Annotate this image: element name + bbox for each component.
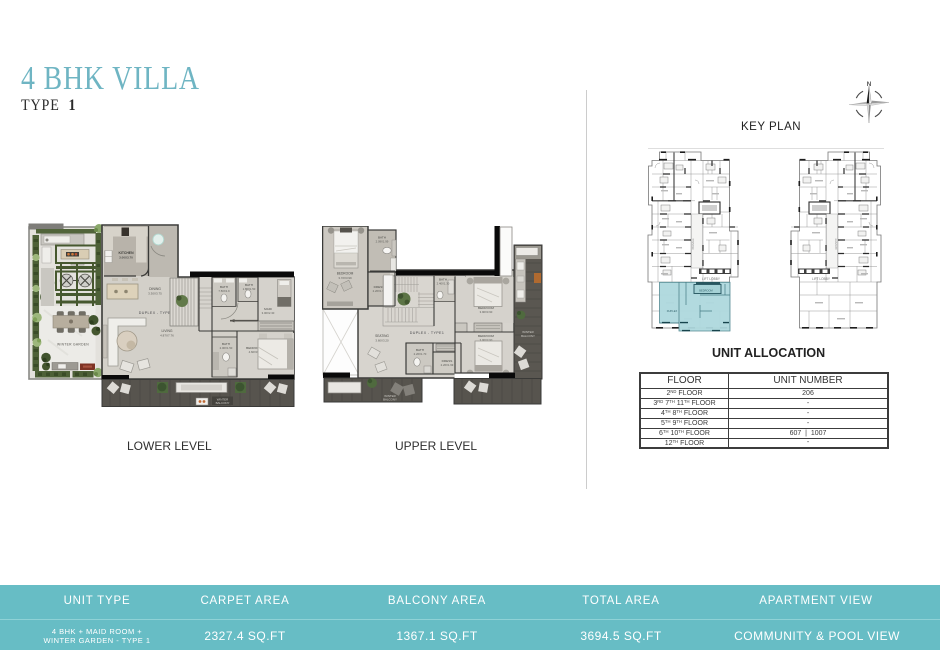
svg-text:3.00X2.30: 3.00X2.30	[262, 311, 275, 315]
svg-text:LIVING: LIVING	[161, 329, 172, 333]
svg-text:BEDROOM: BEDROOM	[699, 289, 712, 293]
svg-text:SEATING: SEATING	[375, 334, 389, 338]
svg-text:7.50X1.9: 7.50X1.9	[218, 289, 230, 293]
svg-text:2.26X1.99: 2.26X1.99	[441, 363, 454, 367]
svg-text:2.00X1.50: 2.00X1.50	[220, 346, 233, 350]
svg-text:4.87X7.76: 4.87X7.76	[160, 334, 174, 338]
svg-text:BALCONY: BALCONY	[521, 334, 535, 338]
svg-text:3.90X3.90: 3.90X3.90	[480, 310, 493, 314]
svg-text:3.72X3.99: 3.72X3.99	[338, 276, 352, 280]
svg-text:3.30X3.75: 3.30X3.75	[148, 292, 162, 296]
svg-text:WINTER GARDEN: WINTER GARDEN	[57, 343, 89, 347]
svg-text:BALCONY: BALCONY	[383, 398, 397, 402]
svg-text:2.26X1.70: 2.26X1.70	[414, 352, 427, 356]
svg-text:BEDROOM: BEDROOM	[337, 272, 354, 276]
svg-text:2.40X1.30: 2.40X1.30	[437, 282, 450, 286]
svg-text:LIFT LOBBY: LIFT LOBBY	[812, 277, 831, 281]
svg-text:DINING: DINING	[149, 287, 161, 291]
svg-text:1.80X1.50: 1.80X1.50	[243, 287, 256, 291]
svg-text:LIFT LOBBY: LIFT LOBBY	[702, 277, 721, 281]
svg-text:DUPLEX - TYPE1: DUPLEX - TYPE1	[139, 311, 174, 315]
svg-text:BALCONY: BALCONY	[216, 401, 230, 405]
svg-text:DUPLEX: DUPLEX	[667, 309, 678, 313]
svg-text:3.00X3.70: 3.00X3.70	[119, 256, 133, 260]
svg-text:KITCHEN: KITCHEN	[118, 251, 134, 255]
svg-text:3.60X3.20: 3.60X3.20	[375, 339, 389, 343]
svg-text:DUPLEX - TYPE1: DUPLEX - TYPE1	[410, 331, 445, 335]
svg-text:2.09X1.99: 2.09X1.99	[376, 240, 389, 244]
